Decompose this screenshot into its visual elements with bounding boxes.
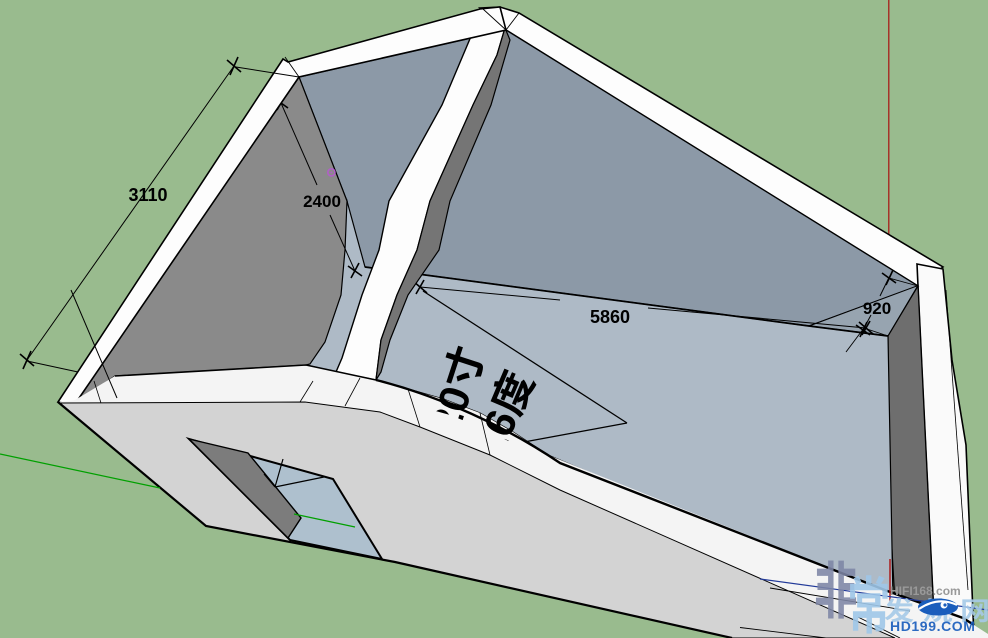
svg-text:3110: 3110 xyxy=(128,185,167,205)
svg-text:920: 920 xyxy=(863,299,891,318)
svg-text:HIFI168.com: HIFI168.com xyxy=(890,584,961,598)
svg-text:2400: 2400 xyxy=(303,192,341,211)
svg-text:5860: 5860 xyxy=(590,307,630,327)
svg-text:HD199.COM: HD199.COM xyxy=(890,618,976,634)
